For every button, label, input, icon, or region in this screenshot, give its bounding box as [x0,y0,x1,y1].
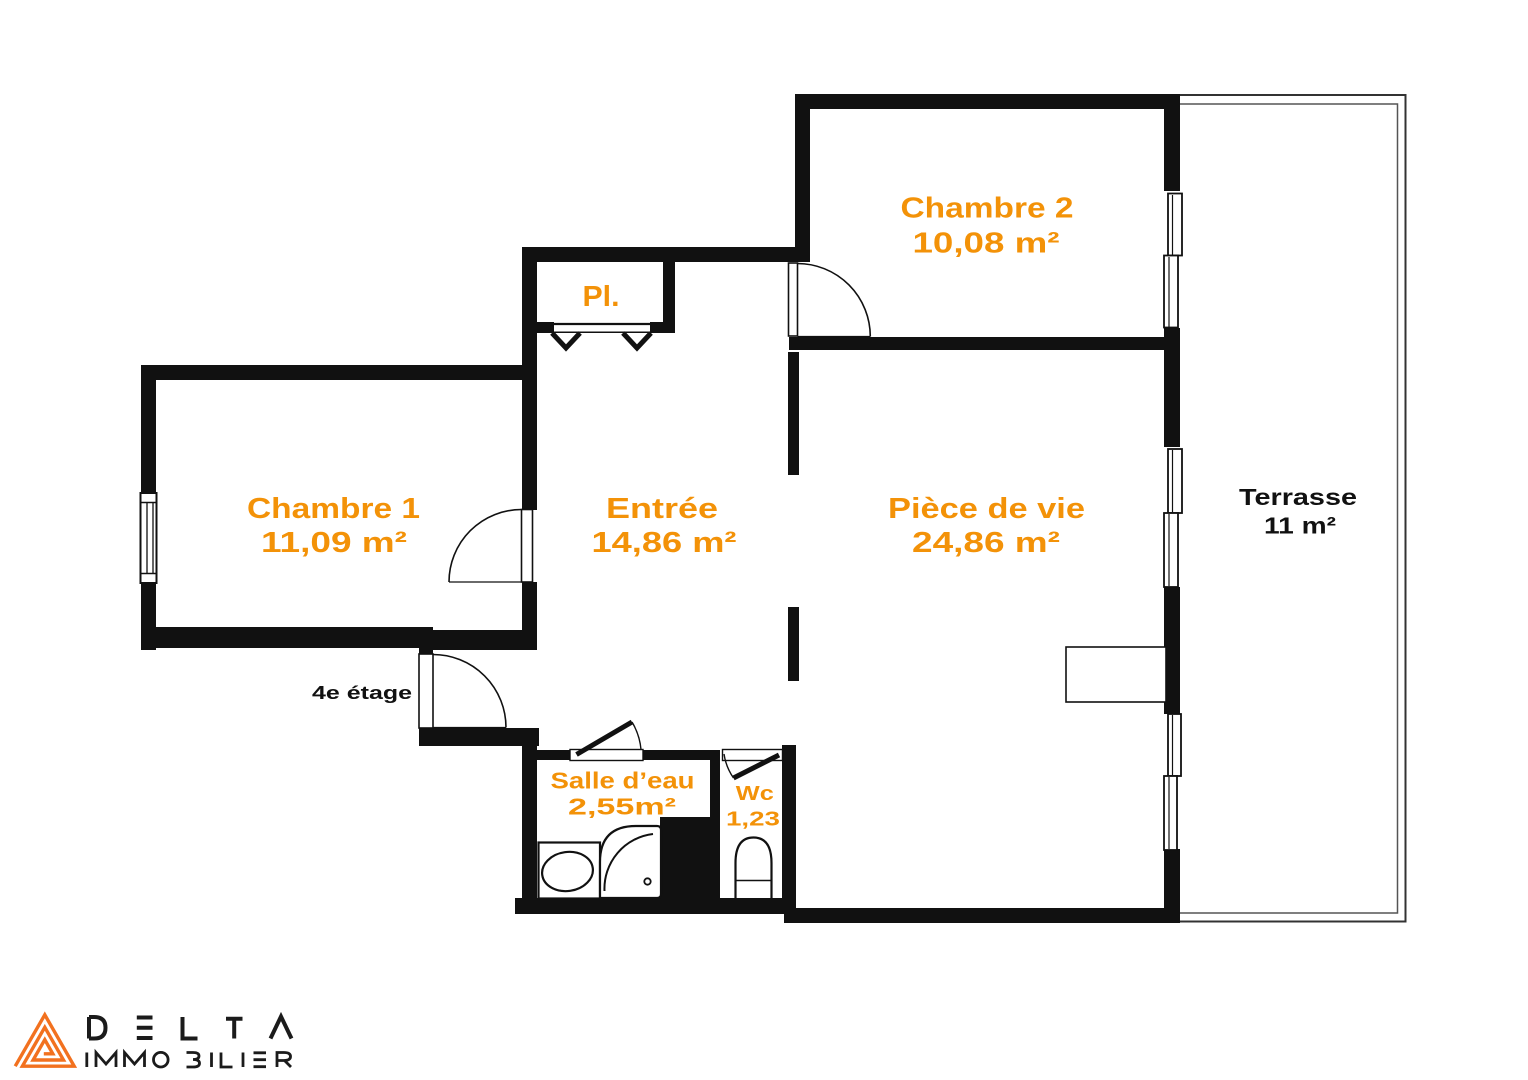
svg-text:10,08 m²: 10,08 m² [913,228,1060,260]
svg-text:Salle d’eau: Salle d’eau [551,768,695,794]
svg-text:11,09 m²: 11,09 m² [261,527,407,559]
svg-text:14,86 m²: 14,86 m² [592,527,737,559]
svg-text:Pl.: Pl. [583,281,620,313]
svg-text:Pièce de vie: Pièce de vie [888,493,1085,525]
svg-text:11 m²: 11 m² [1264,513,1336,539]
svg-text:Terrasse: Terrasse [1239,484,1357,510]
svg-text:2,55m²: 2,55m² [568,794,677,820]
svg-text:Chambre 1: Chambre 1 [247,493,420,525]
svg-text:Chambre 2: Chambre 2 [901,193,1074,225]
svg-text:Wc: Wc [736,783,774,805]
svg-text:1,23: 1,23 [726,809,780,831]
svg-text:Entrée: Entrée [606,493,718,525]
svg-text:4e étage: 4e étage [312,682,412,703]
svg-text:24,86 m²: 24,86 m² [912,527,1060,559]
